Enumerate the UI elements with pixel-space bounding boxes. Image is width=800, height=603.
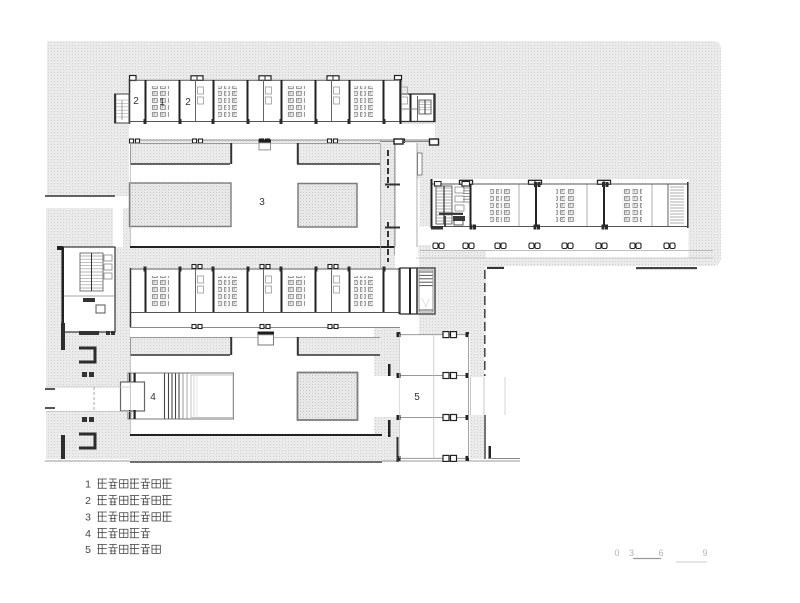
- svg-text:6: 6: [658, 548, 663, 558]
- svg-text:3: 3: [259, 197, 265, 208]
- svg-text:5: 5: [414, 392, 420, 403]
- svg-text:3: 3: [629, 548, 634, 558]
- svg-text:2: 2: [133, 96, 139, 107]
- svg-text:0: 0: [614, 548, 619, 558]
- svg-text:1: 1: [85, 479, 91, 491]
- svg-text:2: 2: [185, 97, 191, 108]
- svg-text:2: 2: [85, 495, 91, 507]
- svg-text:4: 4: [150, 392, 156, 403]
- svg-text:4: 4: [85, 528, 91, 540]
- svg-text:9: 9: [702, 548, 707, 558]
- svg-text:5: 5: [85, 544, 91, 556]
- svg-text:3: 3: [85, 512, 91, 524]
- svg-text:1: 1: [159, 97, 165, 108]
